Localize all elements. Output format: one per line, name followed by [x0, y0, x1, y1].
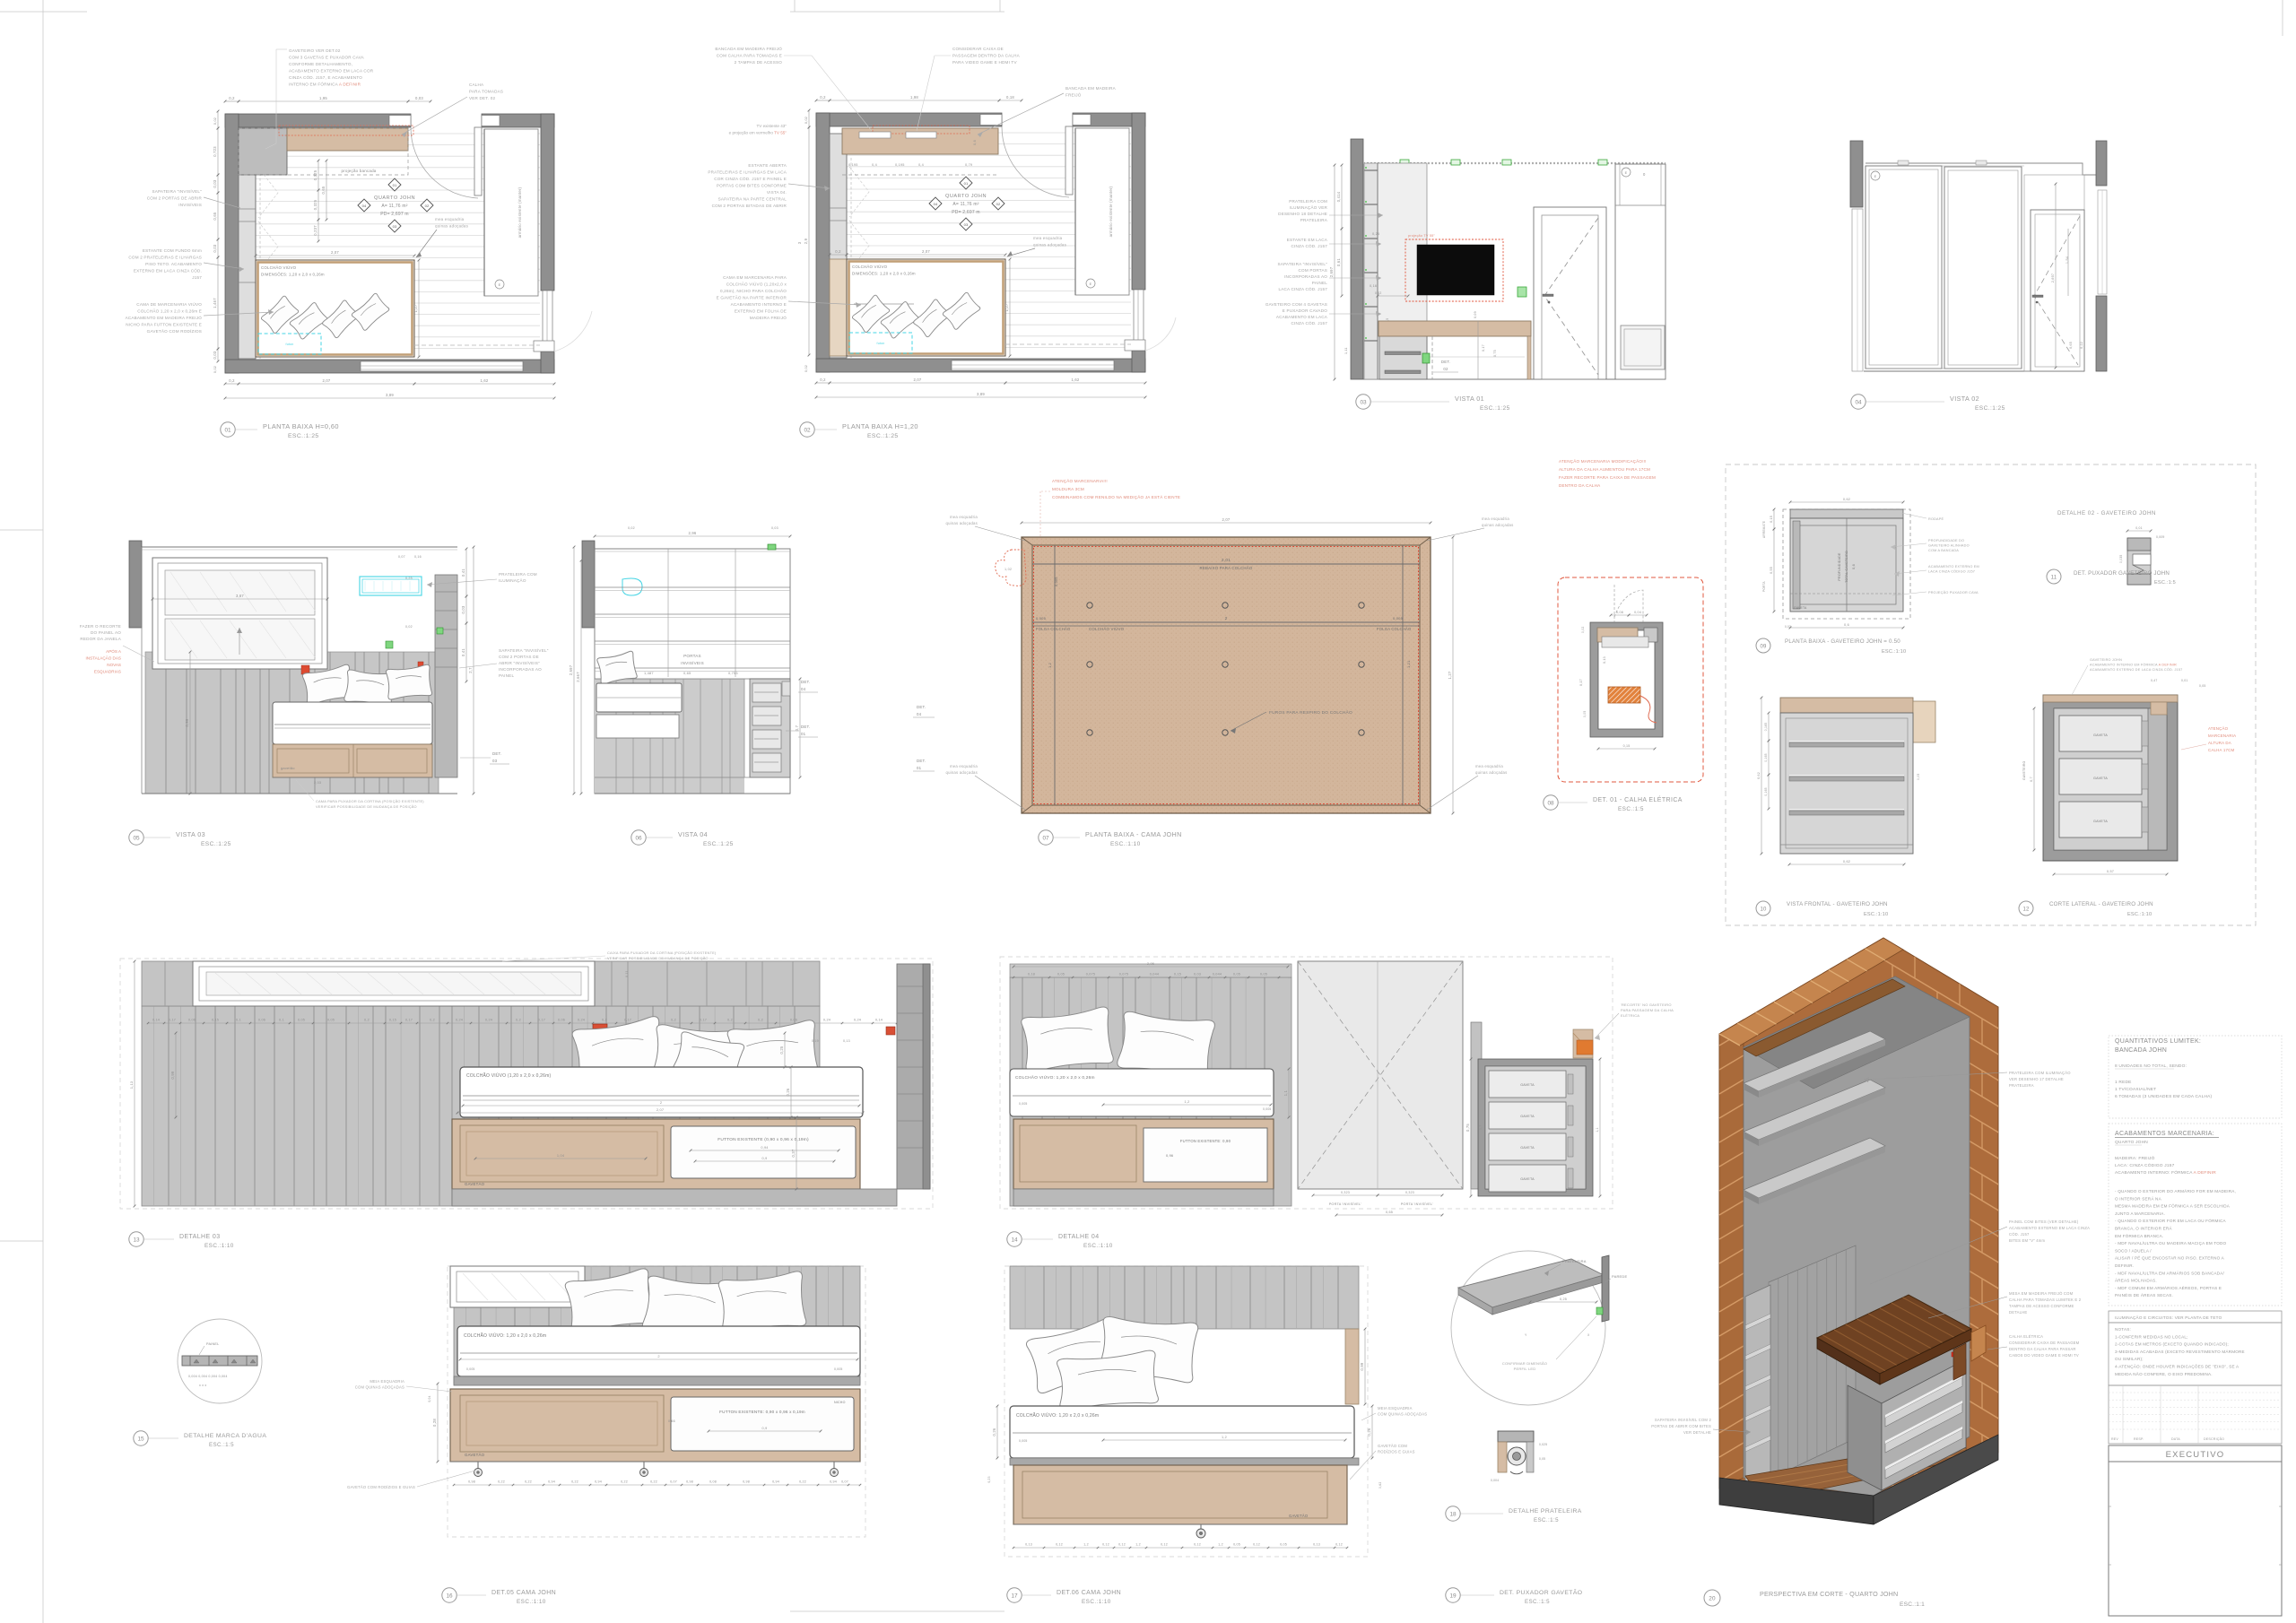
svg-text:ACABAMENTOS MARCENARIA:: ACABAMENTOS MARCENARIA:: [2115, 1131, 2214, 1137]
svg-text:0,03: 0,03: [1194, 973, 1201, 976]
svg-text:2,07: 2,07: [922, 249, 930, 254]
svg-text:PLANTA BAIXA H=0,60: PLANTA BAIXA H=0,60: [263, 422, 339, 430]
svg-text:ILUMINAÇÃO: ILUMINAÇÃO: [499, 577, 526, 583]
svg-text:0,22: 0,22: [571, 1480, 578, 1484]
svg-text:ACABAMENTO EXTERNO EM LACA CIN: ACABAMENTO EXTERNO EM LACA CINZA: [2009, 1226, 2090, 1230]
svg-text:COLCHÃO VIÚVO: COLCHÃO VIÚVO: [261, 265, 297, 270]
svg-text:1,2: 1,2: [1222, 1436, 1227, 1439]
svg-text:PARA VIDEO GAME E HDMI TV: PARA VIDEO GAME E HDMI TV: [952, 60, 1017, 65]
svg-text:DET. PUXADOR GAVETEIRO JOHN: DET. PUXADOR GAVETEIRO JOHN: [2074, 570, 2170, 577]
svg-text:GAVETÃO: GAVETÃO: [465, 1182, 485, 1186]
svg-text:0,753: 0,753: [728, 671, 738, 675]
svg-text:0,61: 0,61: [1336, 258, 1341, 266]
svg-text:04: 04: [1855, 399, 1862, 405]
svg-text:0,6: 0,6: [973, 140, 977, 145]
svg-text:0,12: 0,12: [1056, 1543, 1063, 1547]
svg-text:0,17: 0,17: [700, 1019, 707, 1022]
svg-text:0,2: 0,2: [229, 378, 235, 383]
svg-text:0,12: 0,12: [1118, 1543, 1126, 1547]
svg-text:0,98: 0,98: [743, 1480, 750, 1484]
svg-text:0,05: 0,05: [1539, 1457, 1545, 1461]
svg-text:e projeção em vermelho TV 55": e projeção em vermelho TV 55": [729, 131, 787, 135]
svg-text:0,323: 0,323: [1405, 1191, 1414, 1194]
svg-text:1,27: 1,27: [1004, 303, 1009, 311]
svg-text:- QUANDO O EXTERIOR DO ARMÁRIO: - QUANDO O EXTERIOR DO ARMÁRIO FOR EM MA…: [2115, 1188, 2236, 1193]
svg-text:INCORPORADAS AO: INCORPORADAS AO: [1284, 274, 1327, 279]
svg-text:0,17: 0,17: [538, 1019, 545, 1022]
svg-text:GAVETA: GAVETA: [2093, 733, 2108, 737]
svg-text:04: 04: [362, 204, 367, 208]
svg-text:ACABAMENTO EM LACA: ACABAMENTO EM LACA: [1276, 315, 1328, 319]
svg-text:CAMA PARA PUXADOR DA CORTINA (: CAMA PARA PUXADOR DA CORTINA (POSIÇÃO EX…: [316, 799, 424, 803]
svg-text:'RECORTE' NO GAVETEIRO: 'RECORTE' NO GAVETEIRO: [1621, 1002, 1672, 1007]
svg-text:DETALHE MARCA D'AGUA: DETALHE MARCA D'AGUA: [184, 1433, 266, 1439]
svg-text:CONSIDERAR CAIXA DE PASSAGEM: CONSIDERAR CAIXA DE PASSAGEM: [2009, 1341, 2080, 1345]
svg-text:04: 04: [934, 202, 938, 206]
svg-text:0,94: 0,94: [595, 1480, 602, 1484]
svg-text:0,16: 0,16: [414, 555, 422, 559]
svg-text:1 REDE: 1 REDE: [2115, 1080, 2132, 1085]
svg-text:2,07: 2,07: [1222, 517, 1231, 522]
svg-text:0,7: 0,7: [1479, 1125, 1483, 1130]
svg-text:INVISÍVEIS: INVISÍVEIS: [681, 660, 704, 665]
svg-text:2,667: 2,667: [576, 672, 580, 682]
svg-text:0,005: 0,005: [1393, 616, 1404, 621]
svg-text:PRATELEIRA: PRATELEIRA: [2009, 1083, 2034, 1088]
svg-text:0,24: 0,24: [578, 1019, 585, 1022]
svg-text:0,94: 0,94: [761, 1146, 768, 1150]
svg-text:quinas adoçadas: quinas adoçadas: [1475, 770, 1508, 775]
svg-text:0,65: 0,65: [213, 212, 217, 220]
svg-text:ATENÇÃO MARCENARIA!!!: ATENÇÃO MARCENARIA!!!: [1052, 478, 1108, 483]
svg-text:05: 05: [133, 835, 140, 841]
svg-text:DETALHE: DETALHE: [2009, 1310, 2027, 1315]
svg-text:COM 2 PORTAS DE: COM 2 PORTAS DE: [499, 655, 539, 659]
svg-text:SAPATEIRA NA PARTE CENTRAL: SAPATEIRA NA PARTE CENTRAL: [718, 197, 787, 202]
svg-text:ESC.:1:5: ESC.:1:5: [2154, 580, 2176, 586]
svg-text:15: 15: [137, 1436, 144, 1442]
svg-text:PORTAS DE ABRIR COM BITES: PORTAS DE ABRIR COM BITES: [1651, 1424, 1711, 1428]
svg-text:2,7: 2,7: [468, 667, 473, 673]
svg-text:0,025: 0,025: [1539, 1443, 1547, 1446]
svg-text:FUROS PARA RESPIRO DO COLCHÃO: FUROS PARA RESPIRO DO COLCHÃO: [1269, 709, 1352, 716]
svg-text:ESC.:1:5: ESC.:1:5: [1525, 1599, 1550, 1605]
svg-text:1,95: 1,95: [319, 96, 327, 100]
svg-text:0,06: 0,06: [188, 1019, 196, 1022]
svg-text:2,07: 2,07: [331, 250, 339, 255]
svg-text:CONFIRMAR DIMENSÃO: CONFIRMAR DIMENSÃO: [1502, 1361, 1547, 1366]
svg-text:COLCHÃO 1,20 x 2,0 x 0,26m E: COLCHÃO 1,20 x 2,0 x 0,26m E: [137, 308, 202, 314]
svg-text:0,65: 0,65: [321, 186, 326, 194]
svg-text:COM 2 PORTAS DE ABRIR: COM 2 PORTAS DE ABRIR: [147, 196, 203, 201]
svg-text:SAPATEIRA INVISÍVEL COM 2: SAPATEIRA INVISÍVEL COM 2: [1655, 1418, 1712, 1422]
svg-text:0,62: 0,62: [1843, 860, 1850, 864]
svg-text:COM PORTAS: COM PORTAS: [1299, 268, 1327, 273]
svg-text:TOTAL GAVETEIRO: TOTAL GAVETEIRO: [1845, 551, 1848, 583]
svg-text:ALISAR / PÉ QUE ENCOSTAR NO PI: ALISAR / PÉ QUE ENCOSTAR NO PISO. EXTERN…: [2115, 1255, 2225, 1261]
svg-text:PROJEÇÃO PUXADOR CAVA: PROJEÇÃO PUXADOR CAVA: [1928, 590, 1979, 595]
svg-text:0,075: 0,075: [1119, 973, 1129, 976]
svg-text:0,005: 0,005: [1055, 577, 1058, 586]
svg-text:MEIA ESQUADRIA: MEIA ESQUADRIA: [370, 1379, 404, 1384]
svg-text:ACABAMENTO INTERNO E: ACABAMENTO INTERNO E: [731, 302, 787, 307]
svg-text:GAVETEIRO VER DET.02: GAVETEIRO VER DET.02: [289, 48, 341, 53]
svg-text:0,65: 0,65: [1386, 1211, 1393, 1214]
svg-text:PLANTA BAIXA - GAVETEIRO JOHN: PLANTA BAIXA - GAVETEIRO JOHN = 0.50: [1785, 638, 1900, 645]
svg-text:ACABAMENTO INTERNO: FÓRMICA A: ACABAMENTO INTERNO: FÓRMICA A DEFINIR: [2115, 1169, 2216, 1176]
svg-text:CONSIDERAR CAIXA DE: CONSIDERAR CAIXA DE: [952, 47, 1004, 51]
svg-text:TAMPAS DE ACESSO CONFORME: TAMPAS DE ACESSO CONFORME: [2009, 1304, 2074, 1308]
svg-text:quinas adoçadas: quinas adoçadas: [1033, 243, 1067, 247]
svg-text:E: E: [1874, 175, 1877, 178]
svg-text:0,08: 0,08: [1616, 611, 1623, 614]
svg-text:RODAPÉ: RODAPÉ: [1928, 516, 1944, 521]
svg-text:SAPATEIRA "INVISÍVEL": SAPATEIRA "INVISÍVEL": [152, 188, 202, 194]
svg-text:DETALHE PRATELEIRA: DETALHE PRATELEIRA: [1509, 1508, 1582, 1515]
svg-text:COLCHÃO VIÚVO: COLCHÃO VIÚVO: [1089, 627, 1125, 631]
svg-text:0,11: 0,11: [625, 970, 629, 977]
svg-text:16: 16: [446, 1593, 453, 1599]
svg-text:0,25: 0,25: [405, 577, 413, 580]
svg-text:0,004: 0,004: [1491, 1479, 1499, 1482]
svg-text:DET.06 CAMA JOHN: DET.06 CAMA JOHN: [1057, 1590, 1121, 1596]
svg-text:ALTURA DA CALHA AUMENTOU PARA: ALTURA DA CALHA AUMENTOU PARA 17CM: [1559, 467, 1650, 472]
svg-text:0,2: 0,2: [602, 1019, 607, 1022]
svg-text:0,55: 0,55: [1770, 567, 1773, 574]
svg-text:0,41: 0,41: [461, 648, 465, 656]
svg-text:1,27: 1,27: [1448, 671, 1452, 679]
svg-text:03: 03: [1360, 399, 1367, 405]
svg-text:GAVETA: GAVETA: [1520, 1115, 1535, 1118]
svg-text:E: E: [1090, 282, 1092, 286]
svg-text:CAIXA PARA PUXADOR DA CORTINA: CAIXA PARA PUXADOR DA CORTINA (POSIÇÃO E…: [607, 950, 717, 955]
svg-text:- MDF NAVAL/ULTRA OU MADEIRA M: - MDF NAVAL/ULTRA OU MADEIRA MACIÇA EM T…: [2115, 1241, 2227, 1245]
svg-text:CAMA EM MARCENARIA PARA: CAMA EM MARCENARIA PARA: [723, 275, 787, 280]
svg-text:0,04: 0,04: [428, 1395, 431, 1402]
svg-text:ILUMINAÇÃO VER: ILUMINAÇÃO VER: [1290, 204, 1328, 210]
svg-text:ALTURA DA: ALTURA DA: [2208, 741, 2231, 745]
svg-text:0,12: 0,12: [1161, 1543, 1168, 1547]
svg-text:03: 03: [393, 224, 397, 229]
svg-text:PORTAS COM BITES CONFORME: PORTAS COM BITES CONFORME: [717, 184, 787, 188]
svg-text:0,22: 0,22: [799, 1480, 806, 1484]
svg-text:1,27: 1,27: [413, 304, 418, 312]
svg-text:GAVETA: GAVETA: [1520, 1146, 1535, 1150]
svg-text:1,487: 1,487: [644, 671, 654, 675]
svg-text:0,12: 0,12: [1335, 1543, 1343, 1547]
svg-text:VER DESENHO 17 DETALHE: VER DESENHO 17 DETALHE: [2009, 1077, 2064, 1081]
svg-text:0,12: 0,12: [1253, 1543, 1260, 1547]
svg-text:COLCHÃO VIÚVO: 1,20 x 2,0 x 0,: COLCHÃO VIÚVO: 1,20 x 2,0 x 0,26m: [1015, 1074, 1095, 1081]
svg-text:PRATELEIRAS E ILHARGAS EM LACA: PRATELEIRAS E ILHARGAS EM LACA: [708, 170, 787, 175]
svg-text:0,17: 0,17: [624, 1019, 631, 1022]
svg-text:INSTALAÇÃO DAS: INSTALAÇÃO DAS: [86, 655, 121, 661]
svg-text:GAVETÃO COM RODÍZIOS: GAVETÃO COM RODÍZIOS: [147, 328, 202, 334]
svg-text:2,01: 2,01: [1222, 558, 1231, 563]
svg-text:0,2: 0,2: [229, 96, 235, 100]
svg-text:CALHA 17CM: CALHA 17CM: [2208, 748, 2234, 752]
svg-text:0,08: 0,08: [709, 1480, 717, 1484]
svg-text:PASSAGEM DENTRO DA CALHA: PASSAGEM DENTRO DA CALHA: [952, 54, 1021, 58]
svg-text:ACABAMENTO EM MADEIRA FREIJÓ: ACABAMENTO EM MADEIRA FREIJÓ: [126, 315, 203, 320]
svg-text:GAVETEIRO JOHN: GAVETEIRO JOHN: [2090, 658, 2122, 662]
svg-text:NOTAS:: NOTAS:: [2115, 1327, 2131, 1332]
svg-text:GAVETEIRO: GAVETEIRO: [2022, 761, 2026, 780]
svg-text:BRANCA, O INTERIOR ERÁ: BRANCA, O INTERIOR ERÁ: [2115, 1226, 2172, 1231]
svg-text:ELÉTRICA: ELÉTRICA: [1621, 1013, 1639, 1018]
svg-text:ARREMATE: ARREMATE: [1762, 521, 1766, 538]
svg-text:INVISÍVEIS: INVISÍVEIS: [178, 202, 202, 207]
svg-text:QUARTO JOHN: QUARTO JOHN: [2115, 1140, 2148, 1145]
svg-text:COM 2 PRATELEIRAS E ILHARGAS: COM 2 PRATELEIRAS E ILHARGAS: [128, 256, 202, 260]
svg-text:0,07: 0,07: [670, 1480, 677, 1484]
svg-text:17: 17: [1011, 1593, 1018, 1599]
svg-text:TV existente 43": TV existente 43": [756, 124, 787, 128]
svg-text:1,2: 1,2: [1218, 1543, 1223, 1547]
svg-text:2,96: 2,96: [1147, 962, 1154, 966]
svg-text:0,05: 0,05: [1233, 973, 1240, 976]
svg-text:02: 02: [996, 202, 1001, 206]
svg-text:ESC.:1:10: ESC.:1:10: [1082, 1599, 1111, 1605]
svg-text:0,24: 0,24: [854, 1019, 861, 1022]
svg-text:0,09: 0,09: [1474, 311, 1477, 318]
svg-text:1,2: 1,2: [1083, 1543, 1089, 1547]
svg-text:x x x: x x x: [199, 1384, 206, 1387]
svg-text:RODÍZIOS E GUIAS: RODÍZIOS E GUIAS: [1378, 1450, 1415, 1454]
svg-text:2,697: 2,697: [569, 664, 573, 675]
svg-text:DO PAINEL AO: DO PAINEL AO: [91, 630, 121, 635]
svg-text:LACA: CINZA CÓDIGO J157: LACA: CINZA CÓDIGO J157: [2115, 1162, 2175, 1168]
svg-text:1,467: 1,467: [213, 298, 217, 308]
svg-text:0,22: 0,22: [498, 1480, 505, 1484]
svg-text:mea esquadria: mea esquadria: [950, 764, 978, 768]
svg-text:0,22: 0,22: [650, 1480, 657, 1484]
svg-text:2 TAMPAS DE ACESSO: 2 TAMPAS DE ACESSO: [735, 60, 783, 65]
svg-text:0,035: 0,035: [2119, 555, 2123, 564]
svg-text:0,12: 0,12: [1102, 1543, 1109, 1547]
svg-text:0,2: 0,2: [430, 1019, 435, 1022]
svg-text:MADEIRA: FREIJÓ: MADEIRA: FREIJÓ: [2115, 1155, 2155, 1161]
svg-text:QUARTO JOHN: QUARTO JOHN: [374, 195, 415, 201]
svg-text:COR CINZA CÓD. J157 E PAINEL E: COR CINZA CÓD. J157 E PAINEL E: [714, 176, 787, 181]
svg-text:04: 04: [801, 687, 806, 691]
svg-text:0,005: 0,005: [466, 1367, 475, 1371]
svg-text:0,22: 0,22: [525, 1480, 532, 1484]
svg-text:0,4: 0,4: [872, 163, 877, 167]
svg-text:DENTRO DA CALHA PARA PASSAR: DENTRO DA CALHA PARA PASSAR: [2009, 1347, 2076, 1351]
svg-text:18: 18: [1449, 1511, 1457, 1517]
svg-text:0,7: 0,7: [2030, 777, 2033, 782]
svg-text:0,03: 0,03: [213, 351, 217, 359]
svg-text:ESC.:1:25: ESC.:1:25: [201, 841, 231, 847]
svg-text:0,62: 0,62: [1378, 1482, 1382, 1488]
svg-text:DETALHE 04: DETALHE 04: [1058, 1234, 1100, 1240]
svg-text:PD= 2,697 m: PD= 2,697 m: [380, 212, 409, 217]
svg-text:0,7: 0,7: [795, 725, 799, 731]
svg-text:EXTERNO EM LACA CINZA CÓD.: EXTERNO EM LACA CINZA CÓD.: [134, 268, 202, 273]
svg-text:FAZER O RECORTE: FAZER O RECORTE: [80, 624, 121, 629]
svg-text:A= 11,76 m²: A= 11,76 m²: [381, 204, 407, 209]
svg-text:04: 04: [917, 712, 922, 716]
svg-text:DENTRO DA CALHA: DENTRO DA CALHA: [1559, 483, 1601, 488]
svg-text:2: 2: [660, 1100, 662, 1105]
svg-text:CABOS DO VIDEO GAME E HDMI TV: CABOS DO VIDEO GAME E HDMI TV: [2009, 1353, 2079, 1358]
svg-text:2,697: 2,697: [1329, 266, 1334, 277]
svg-text:COM A BANCADA: COM A BANCADA: [1928, 549, 1959, 552]
svg-text:0,15: 0,15: [1770, 516, 1773, 523]
svg-text:1,2: 1,2: [1135, 1543, 1141, 1547]
svg-text:03: 03: [964, 222, 969, 227]
svg-text:ESC.:1:10: ESC.:1:10: [1864, 912, 1888, 917]
svg-text:0,2: 0,2: [835, 249, 841, 254]
svg-text:PAINEL: PAINEL: [1312, 281, 1327, 285]
svg-text:ESC.:1:5: ESC.:1:5: [1618, 806, 1644, 812]
svg-text:CONFORME DETALHAMENTO,: CONFORME DETALHAMENTO,: [289, 62, 352, 66]
svg-text:0,18: 0,18: [1028, 973, 1035, 976]
svg-text:2,697: 2,697: [2051, 273, 2055, 283]
svg-text:1,11: 1,11: [1344, 347, 1348, 354]
svg-text:REBAIXO PARA COLCHÃO: REBAIXO PARA COLCHÃO: [1199, 566, 1252, 570]
svg-text:INCORPORADAS AO: INCORPORADAS AO: [499, 667, 542, 672]
svg-text:0,009: 0,009: [2156, 535, 2165, 539]
svg-text:0,96: 0,96: [1166, 1154, 1173, 1158]
svg-text:0,24: 0,24: [485, 1019, 492, 1022]
svg-text:10: 10: [1760, 907, 1767, 913]
svg-text:0,05: 0,05: [327, 1019, 335, 1022]
svg-text:GAVETA: GAVETA: [1520, 1177, 1535, 1181]
svg-text:0,165: 0,165: [1764, 753, 1768, 762]
svg-text:0,62: 0,62: [1757, 772, 1761, 779]
svg-text:DET.: DET.: [801, 725, 810, 729]
svg-text:E PUXADOR CAVADO: E PUXADOR CAVADO: [1283, 308, 1327, 313]
svg-text:0,195: 0,195: [895, 163, 905, 167]
svg-text:1,2: 1,2: [1185, 1100, 1190, 1104]
svg-text:0,99: 0,99: [185, 718, 189, 726]
svg-text:0,165: 0,165: [1764, 787, 1768, 796]
svg-text:DATA: DATA: [2171, 1437, 2180, 1441]
svg-text:0,98: 0,98: [468, 1480, 475, 1484]
svg-text:quinas adoçadas: quinas adoçadas: [435, 224, 469, 229]
svg-text:1,1: 1,1: [1596, 1127, 1599, 1132]
svg-text:0,13: 0,13: [1025, 1543, 1032, 1547]
svg-text:19: 19: [1449, 1593, 1457, 1599]
svg-text:DET.: DET.: [492, 751, 501, 756]
svg-text:PERFIL LED: PERFIL LED: [1514, 1367, 1536, 1371]
svg-text:0,26: 0,26: [992, 1428, 996, 1436]
svg-text:2: 2: [1225, 616, 1228, 621]
svg-text:0,06: 0,06: [558, 1019, 565, 1022]
svg-text:SAPATEIRA "INVISÍVEL": SAPATEIRA "INVISÍVEL": [1277, 261, 1327, 266]
svg-text:GAVETA: GAVETA: [1520, 1083, 1535, 1087]
svg-text:VISTA 02: VISTA 02: [1950, 395, 1979, 403]
svg-text:1,02: 1,02: [1004, 568, 1012, 571]
svg-text:0,005: 0,005: [1263, 1107, 1272, 1111]
svg-text:01: 01: [964, 181, 969, 186]
svg-text:armário existente (manter): armário existente (manter): [1109, 186, 1113, 237]
svg-text:07: 07: [1042, 835, 1049, 841]
svg-text:VER DET. 02: VER DET. 02: [469, 96, 496, 100]
svg-text:PAREDE: PAREDE: [1612, 1274, 1627, 1279]
svg-text:3,89: 3,89: [977, 392, 985, 396]
svg-text:0,2: 0,2: [820, 95, 826, 100]
svg-text:DET.: DET.: [801, 680, 810, 684]
svg-text:mea esquadria: mea esquadria: [950, 515, 978, 519]
svg-text:CINZA CÓD. J157: CINZA CÓD. J157: [1291, 243, 1327, 248]
svg-text:0,26: 0,26: [1367, 1428, 1371, 1436]
svg-text:MARCENARIA: MARCENARIA: [2208, 733, 2236, 738]
svg-text:DET.05 CAMA JOHN: DET.05 CAMA JOHN: [491, 1590, 556, 1596]
svg-text:CALHA ELÉTRICA: CALHA ELÉTRICA: [2009, 1334, 2043, 1339]
svg-text:GAVETÃO: GAVETÃO: [1289, 1514, 1309, 1518]
svg-text:02: 02: [804, 427, 811, 433]
svg-text:PAINÉIS DE ÁREAS SECAS.: PAINÉIS DE ÁREAS SECAS.: [2115, 1292, 2173, 1298]
svg-text:0,02: 0,02: [405, 625, 413, 629]
svg-text:0,65: 0,65: [2069, 342, 2073, 349]
svg-text:0,05: 0,05: [2199, 684, 2205, 688]
svg-text:01: 01: [224, 427, 231, 433]
svg-text:0,02: 0,02: [1375, 291, 1381, 295]
svg-text:COLCHÃO VIÚVO: COLCHÃO VIÚVO: [852, 265, 888, 269]
svg-text:0,17: 0,17: [169, 1019, 176, 1022]
svg-text:0,005: 0,005: [1036, 616, 1047, 621]
svg-text:0,65: 0,65: [683, 671, 691, 675]
svg-text:ÁREAS MOLHADAS.: ÁREAS MOLHADAS.: [2115, 1278, 2157, 1283]
svg-text:FOLGA COLCHÃO: FOLGA COLCHÃO: [1377, 627, 1412, 631]
svg-text:VISTA 04: VISTA 04: [678, 830, 708, 838]
svg-text:ESC.:1:25: ESC.:1:25: [1480, 405, 1510, 412]
svg-text:0,195: 0,195: [848, 163, 858, 167]
svg-text:GAVETA: GAVETA: [2093, 777, 2108, 780]
svg-text:0,005: 0,005: [1019, 1102, 1028, 1106]
svg-text:ESTANTE ABERTA: ESTANTE ABERTA: [748, 163, 787, 168]
svg-text:0,323: 0,323: [1341, 1191, 1350, 1194]
svg-text:SOCO / ADUELA /: SOCO / ADUELA /: [2115, 1248, 2152, 1253]
svg-text:COM 3 GAVETAS E PUXADOR CAVA: COM 3 GAVETAS E PUXADOR CAVA: [289, 56, 365, 60]
svg-text:PLANTA BAIXA H=1,20: PLANTA BAIXA H=1,20: [842, 422, 918, 430]
svg-text:NICHO PARA FUTTON EXISTENTE E: NICHO PARA FUTTON EXISTENTE E: [126, 323, 202, 327]
svg-text:0,62: 0,62: [1843, 498, 1850, 501]
svg-text:1,62: 1,62: [481, 378, 489, 383]
svg-text:0,03: 0,03: [771, 526, 778, 530]
svg-text:0,05: 0,05: [1280, 1543, 1287, 1547]
svg-text:0,2: 0,2: [671, 1019, 676, 1022]
svg-text:0,07: 0,07: [398, 555, 405, 559]
svg-text:2,07: 2,07: [914, 378, 922, 382]
svg-text:0,325: 0,325: [313, 199, 317, 210]
svg-text:0,25: 0,25: [779, 1046, 784, 1054]
svg-text:PLANTA BAIXA - CAMA JOHN: PLANTA BAIXA - CAMA JOHN: [1085, 830, 1182, 838]
svg-text:01: 01: [917, 766, 922, 770]
svg-text:COLCHÃO VIÚVO: 1,20 x 2,0 x 0,: COLCHÃO VIÚVO: 1,20 x 2,0 x 0,26m: [464, 1332, 546, 1339]
svg-text:0,24: 0,24: [456, 1019, 463, 1022]
svg-text:0,28: 0,28: [432, 1419, 437, 1427]
svg-text:0,075: 0,075: [1086, 973, 1096, 976]
svg-text:0,15: 0,15: [1174, 973, 1181, 976]
svg-text:ILUMINAÇÃO E CIRCUITOS: VER PL: ILUMINAÇÃO E CIRCUITOS: VER PLANTA DE TE…: [2115, 1315, 2222, 1320]
svg-text:0,2: 0,2: [727, 1019, 733, 1022]
svg-text:MOLDURA 3CM: MOLDURA 3CM: [1052, 487, 1084, 491]
svg-text:ACABAMENTO EXTERNO DE LACA CIN: ACABAMENTO EXTERNO DE LACA CINZA CÓD. J1…: [2090, 667, 2183, 672]
svg-text:0,05: 0,05: [298, 1019, 305, 1022]
svg-text:- MDF COMUM EM ARMÁRIOS AÉREOS: - MDF COMUM EM ARMÁRIOS AÉREOS, PORTAS E: [2115, 1285, 2222, 1290]
svg-text:PRATELEIRA COM: PRATELEIRA COM: [1289, 199, 1327, 204]
svg-text:CÓD. J157: CÓD. J157: [2009, 1232, 2030, 1237]
svg-text:DIMENSÕES: 1,20 x 2,0 x 0,26m: DIMENSÕES: 1,20 x 2,0 x 0,26m: [261, 273, 325, 277]
svg-text:PARA TOMADAS: PARA TOMADAS: [469, 90, 503, 94]
svg-text:0,25: 0,25: [1560, 1298, 1567, 1301]
svg-text:1-CONFERIR MEDIDAS NO LOCAL;: 1-CONFERIR MEDIDAS NO LOCAL;: [2115, 1334, 2188, 1339]
svg-text:GAVETA: GAVETA: [2093, 820, 2108, 823]
